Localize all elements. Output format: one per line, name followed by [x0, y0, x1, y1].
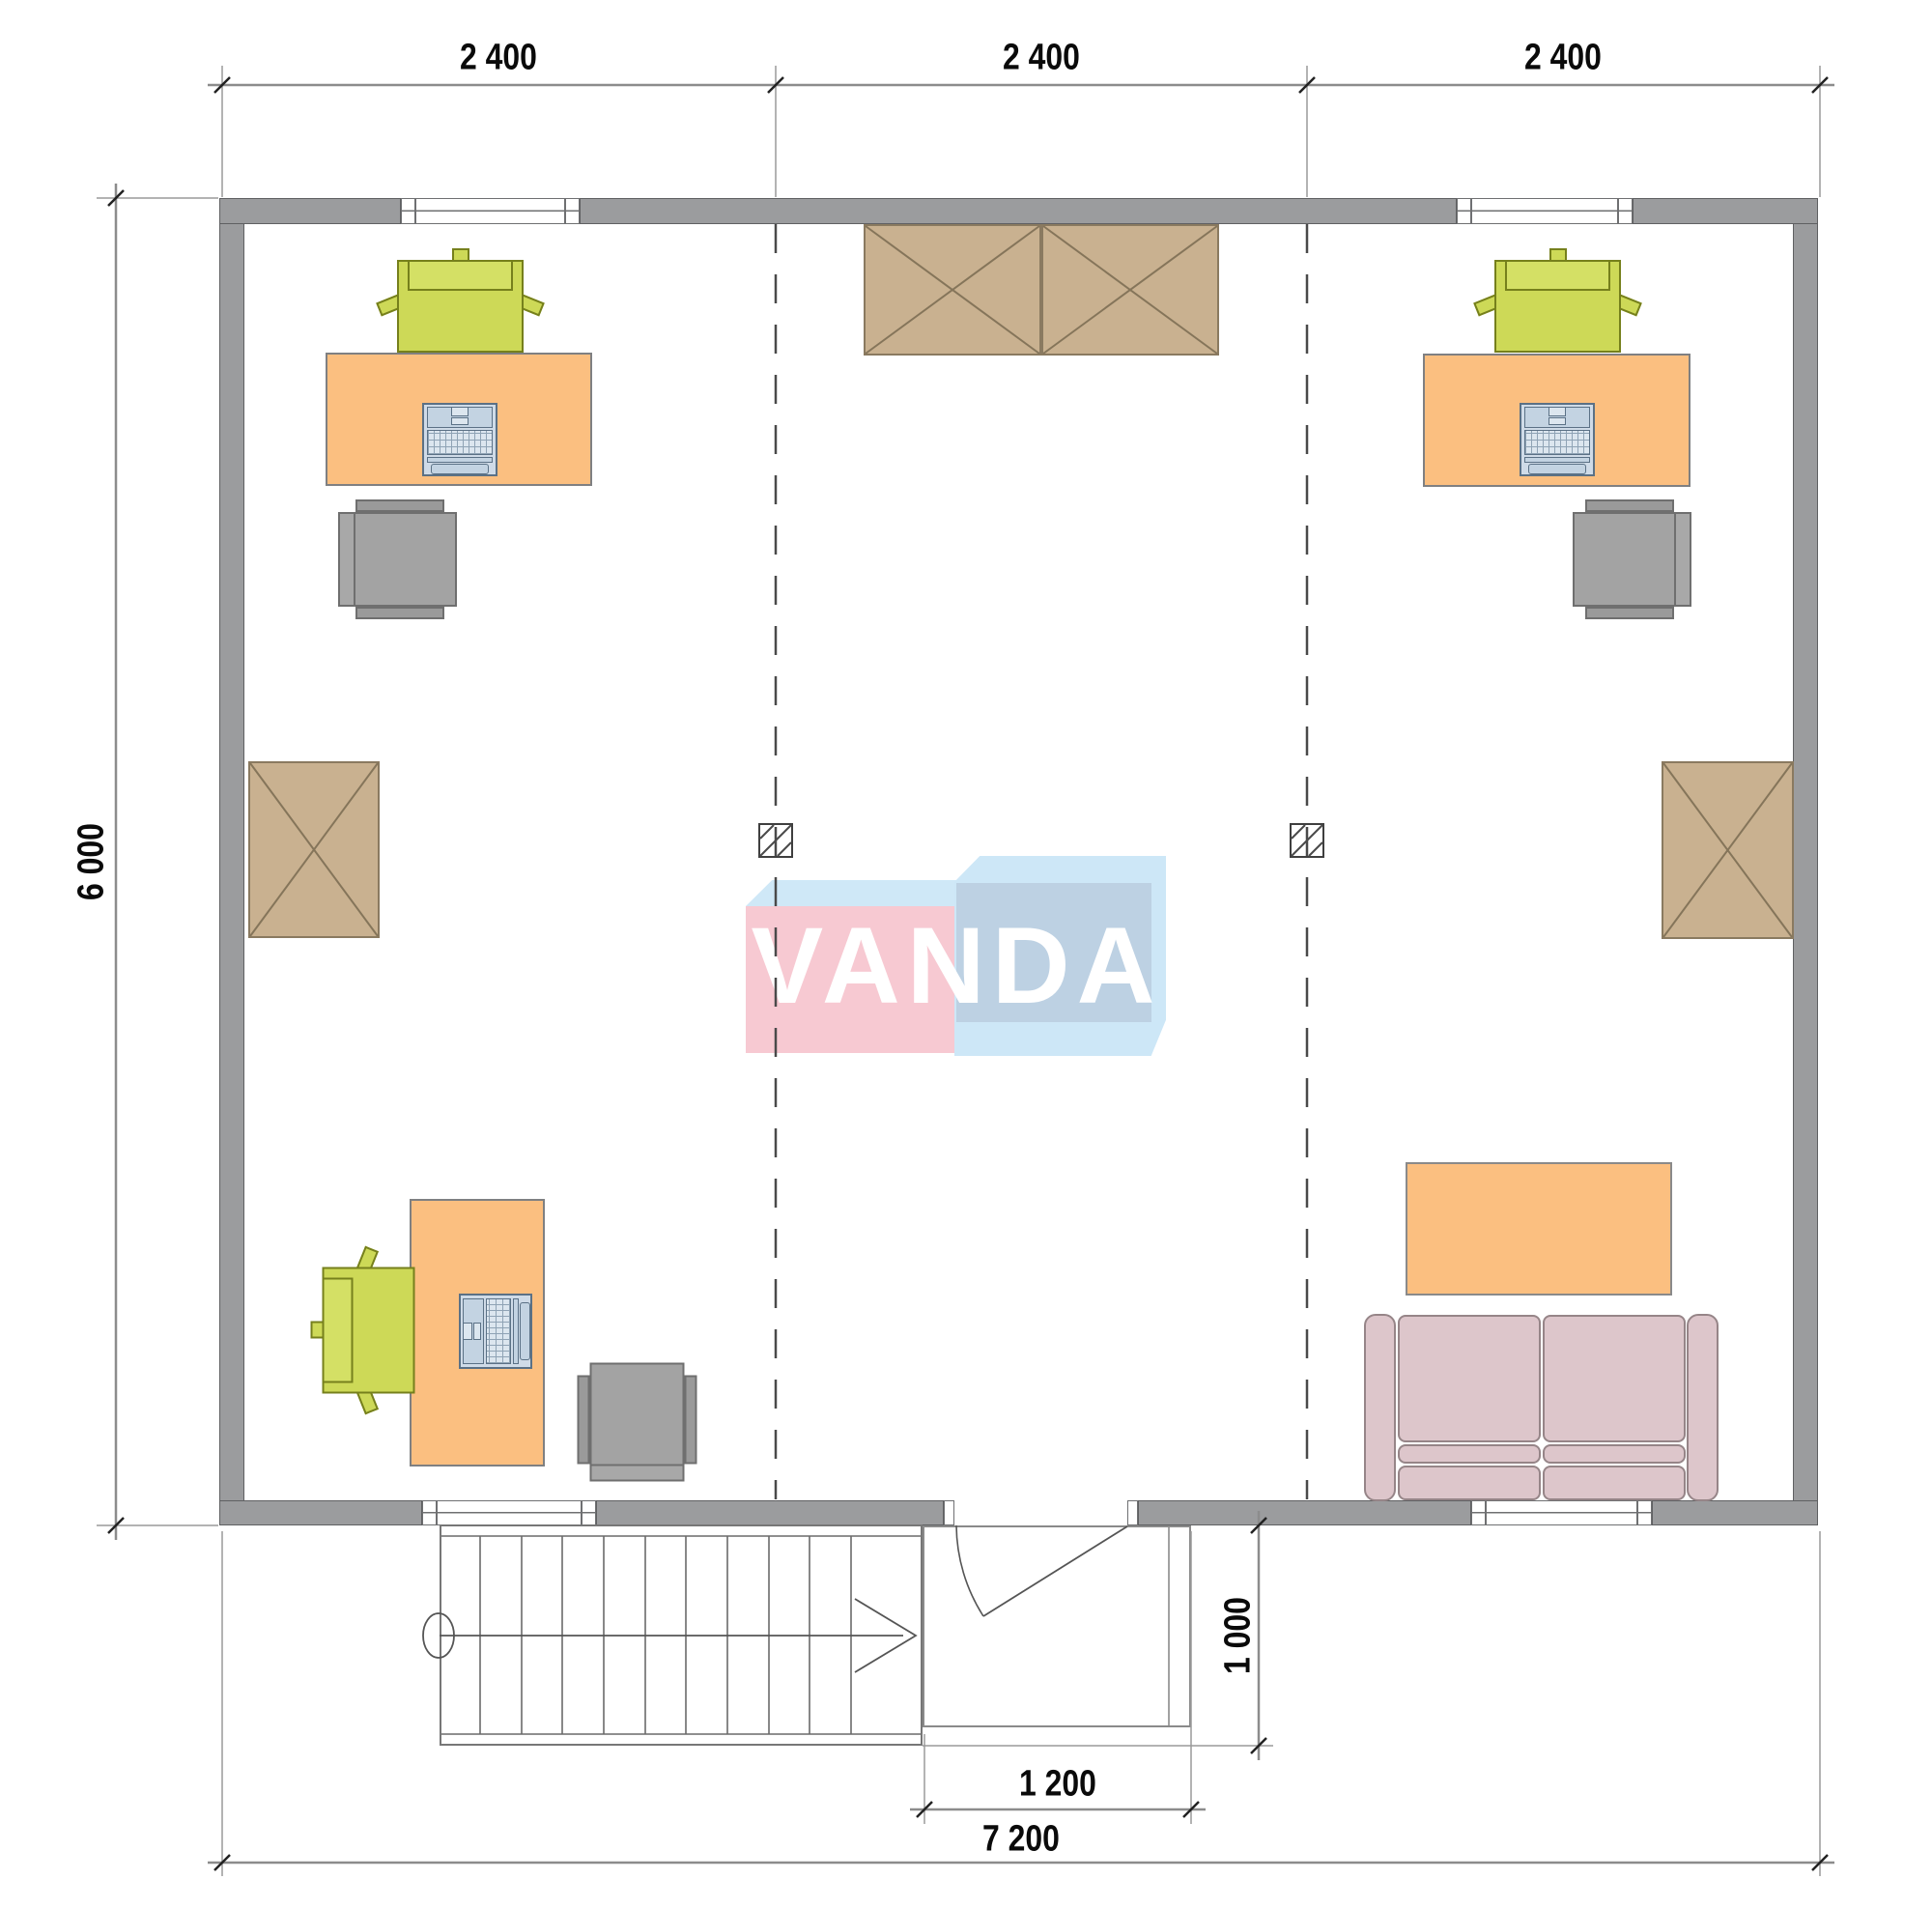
- laptop-detail: [473, 1323, 481, 1340]
- laptop-bar: [1524, 457, 1590, 463]
- wall-top-segment-2: [580, 198, 1457, 224]
- sofa-armrest-right: [1687, 1314, 1719, 1501]
- sofa: [1364, 1314, 1719, 1501]
- laptop-bar: [513, 1298, 519, 1364]
- vanda-logo: VANDA: [734, 850, 1179, 1063]
- wall-bottom-segment-1: [219, 1500, 422, 1525]
- sofa-base-left: [1398, 1466, 1541, 1500]
- dim-label-bay-3: 2 400: [1524, 38, 1602, 79]
- floor-plan: VANDA: [0, 0, 1932, 1908]
- office-chair-green-top-left: [397, 248, 524, 353]
- sofa-base-right: [1543, 1466, 1686, 1500]
- chair-side-bar: [1585, 499, 1674, 512]
- laptop-touchpad: [1528, 464, 1586, 474]
- wall-top-segment-1: [219, 198, 401, 224]
- wardrobe-top-center-right: [1041, 224, 1219, 356]
- laptop-top-right: [1520, 403, 1595, 476]
- sofa-cushion-right: [1543, 1315, 1686, 1442]
- wall-bottom-segment-2: [596, 1500, 944, 1525]
- window-bottom-left: [422, 1500, 596, 1525]
- staircase: [440, 1524, 923, 1746]
- guest-chair-top-right: [1573, 499, 1691, 620]
- chair-side-bar: [685, 1376, 697, 1465]
- laptop-keyboard: [427, 430, 493, 455]
- logo-text: VANDA: [744, 894, 1169, 1039]
- wardrobe-top-center-left: [864, 224, 1041, 356]
- chair-side-bar: [355, 499, 444, 512]
- door-jamb-right: [1127, 1500, 1138, 1525]
- office-chair-green-bottom-left: [311, 1267, 415, 1394]
- sofa-back-strip-right: [1543, 1444, 1686, 1464]
- guest-chair-top-left: [338, 499, 457, 619]
- chair-body: [590, 1363, 685, 1467]
- wardrobe-right-wall: [1662, 761, 1794, 939]
- laptop-detail: [1548, 407, 1566, 416]
- chair-side-bar: [1585, 607, 1674, 619]
- dim-label-bay-2: 2 400: [1003, 38, 1080, 79]
- chair-backrest: [408, 260, 513, 291]
- chair-backrest: [1505, 260, 1610, 291]
- laptop-bottom-left: [459, 1294, 532, 1369]
- dim-label-height: 6 000: [71, 823, 113, 900]
- sofa-armrest-left: [1364, 1314, 1396, 1501]
- laptop-detail: [451, 407, 469, 416]
- dim-label-entrance-width: 1 200: [1019, 1764, 1096, 1806]
- wall-top-segment-3: [1633, 198, 1818, 224]
- laptop-touchpad: [520, 1302, 530, 1360]
- wall-bottom-segment-3: [1138, 1500, 1471, 1525]
- laptop-detail: [1548, 417, 1566, 425]
- dim-label-bay-1: 2 400: [460, 38, 537, 79]
- sofa-back-strip-left: [1398, 1444, 1541, 1464]
- sofa-cushion-left: [1398, 1315, 1541, 1442]
- chair-body: [1573, 512, 1676, 607]
- laptop-bar: [427, 457, 493, 463]
- door-jamb-left: [944, 1500, 954, 1525]
- laptop-top-left: [422, 403, 497, 476]
- office-chair-green-top-right: [1494, 248, 1621, 353]
- window-bottom-right: [1471, 1500, 1652, 1525]
- entrance-porch: [923, 1525, 1191, 1727]
- chair-side-bar: [355, 607, 444, 619]
- laptop-touchpad: [431, 464, 489, 474]
- guest-chair-bottom-left: [578, 1363, 697, 1482]
- laptop-keyboard: [486, 1298, 511, 1364]
- dim-label-porch-depth: 1 000: [1218, 1597, 1260, 1674]
- column-symbol-right: [1290, 823, 1324, 858]
- laptop-detail: [463, 1323, 472, 1340]
- chair-body: [354, 512, 457, 607]
- wall-bottom-segment-4: [1652, 1500, 1818, 1525]
- chair-backrest: [323, 1278, 354, 1383]
- laptop-detail: [451, 417, 469, 425]
- window-top-right: [1457, 198, 1633, 224]
- wall-left: [219, 198, 244, 1525]
- window-top-left: [401, 198, 580, 224]
- chair-side-bar: [578, 1376, 590, 1465]
- wall-right: [1793, 198, 1818, 1525]
- laptop-keyboard: [1524, 430, 1590, 455]
- wardrobe-left-wall: [248, 761, 380, 938]
- dim-label-total-width: 7 200: [982, 1819, 1060, 1861]
- coffee-table: [1406, 1162, 1672, 1296]
